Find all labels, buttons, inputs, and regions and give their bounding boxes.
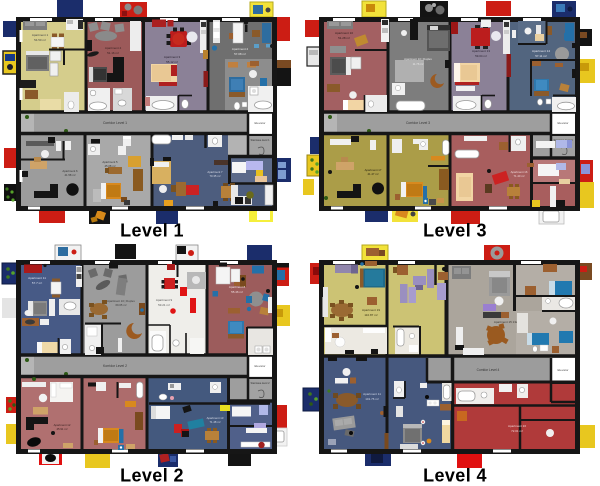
svg-text:57.7 m²: 57.7 m² [32,281,42,285]
svg-text:Elevator: Elevator [557,368,568,372]
svg-text:71.40 m²: 71.40 m² [513,174,524,178]
svg-text:Apartment 11: Apartment 11 [363,392,381,396]
svg-text:Elevator: Elevator [557,121,568,125]
svg-text:Apartment 8: Apartment 8 [229,285,246,289]
svg-text:Corridor Level 1: Corridor Level 1 [103,121,127,125]
svg-text:Staircase level 2: Staircase level 2 [250,381,270,385]
svg-text:11.76 m²: 11.76 m² [413,62,424,66]
svg-text:Apartment 9: Apartment 9 [156,298,173,302]
svg-text:Apartment 10: Apartment 10 [335,31,353,35]
svg-text:Corridor Level 4: Corridor Level 4 [477,368,500,372]
svg-text:Apartment 14: Apartment 14 [532,49,550,53]
svg-text:Level 1: Level 1 [120,221,184,241]
svg-text:101.76 m²: 101.76 m² [365,397,379,401]
svg-text:Apartment 11: Apartment 11 [28,276,46,280]
svg-text:70.35 m²: 70.35 m² [209,174,220,178]
svg-text:Corridor Level 3: Corridor Level 3 [406,121,430,125]
svg-text:Apartment 19: Apartment 19 [362,308,380,312]
svg-text:Elevator: Elevator [254,364,265,368]
svg-text:55.46 m²: 55.46 m² [231,290,243,294]
svg-text:Level 2: Level 2 [120,466,184,486]
svg-text:53.21 m²: 53.21 m² [158,303,170,307]
svg-text:Elevator: Elevator [254,121,265,125]
svg-text:57.11 m²: 57.11 m² [535,54,547,58]
svg-text:Apartment 10 | Duplex: Apartment 10 | Duplex [404,57,432,61]
svg-text:Apartment 3: Apartment 3 [164,55,181,59]
svg-text:55.12 m²: 55.12 m² [166,60,178,64]
svg-text:Level 4: Level 4 [423,466,487,486]
svg-text:59.04 m²: 59.04 m² [475,54,487,58]
svg-text:51.16 m²: 51.16 m² [107,51,119,55]
svg-text:54.50 m²: 54.50 m² [34,38,46,42]
svg-text:Apartment 4: Apartment 4 [105,46,122,50]
svg-text:Staircase level 1: Staircase level 1 [250,138,270,142]
svg-text:72.01 m²: 72.01 m² [511,429,523,433]
svg-text:41.47 m²: 41.47 m² [367,172,378,176]
svg-text:69.65 m²: 69.65 m² [115,303,126,307]
svg-text:Korridor Level 2: Korridor Level 2 [103,364,127,368]
svg-text:Level 3: Level 3 [423,221,487,241]
svg-text:57.08 m²: 57.08 m² [234,52,246,56]
svg-text:Apartment 16: Apartment 16 [508,424,526,428]
svg-text:110.87 m²: 110.87 m² [364,313,377,317]
svg-text:45.08 m²: 45.08 m² [104,164,115,168]
svg-text:Apartment 1: Apartment 1 [32,33,49,37]
svg-text:45.91 m²: 45.91 m² [56,427,67,431]
svg-text:Apartment 2: Apartment 2 [232,47,249,51]
svg-text:51.28 m²: 51.28 m² [338,36,350,40]
svg-text:41.58 m²: 41.58 m² [64,173,75,177]
svg-text:71.48 m²: 71.48 m² [209,420,220,424]
svg-text:Apartment 13: Apartment 13 [472,49,490,53]
